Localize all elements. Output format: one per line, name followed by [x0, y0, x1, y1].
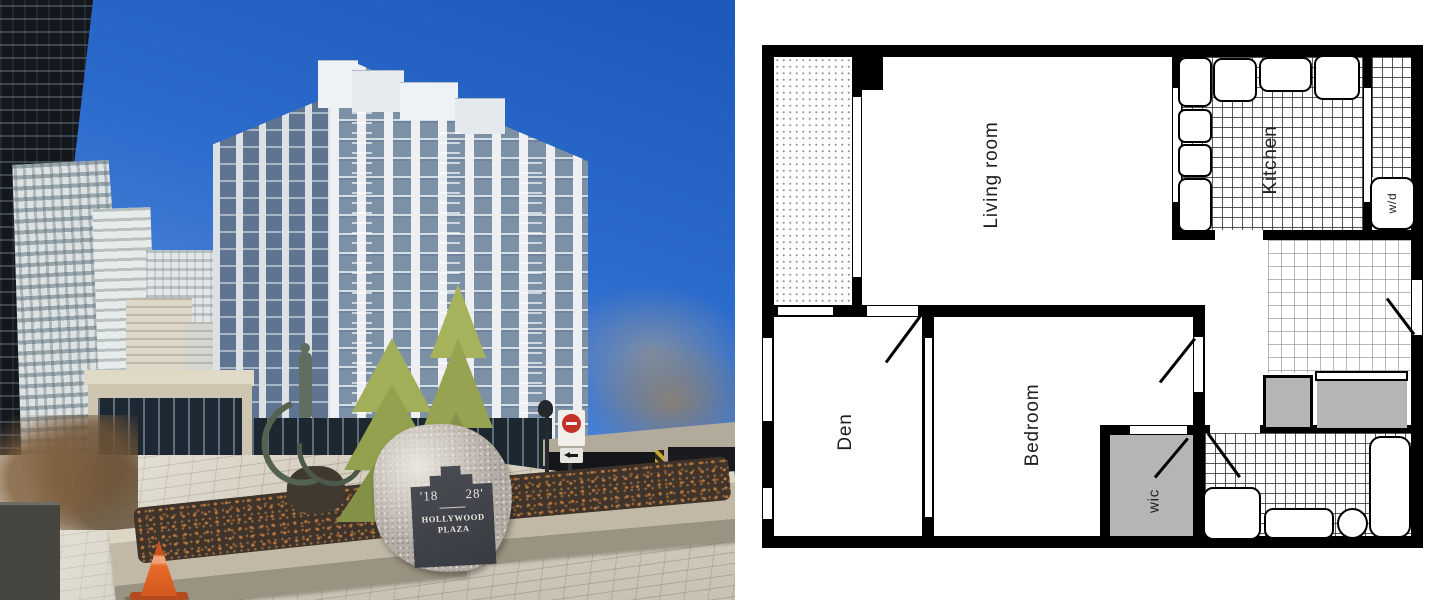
- bath-door-opening: [1210, 425, 1260, 433]
- wall-left: [762, 45, 774, 548]
- closet-slider: [1315, 371, 1408, 381]
- tower-crown: [352, 70, 404, 112]
- den-divider-glass: [925, 338, 932, 517]
- sculpture-figure-head-icon: [300, 343, 310, 353]
- den-window-top: [778, 307, 833, 315]
- wic-door-opening: [1130, 426, 1187, 434]
- listing-image: '18 28' HOLLYWOOD PLAZA: [0, 0, 1440, 600]
- no-entry-sign-icon: [558, 410, 585, 446]
- tower-crown: [400, 82, 458, 120]
- living-room-label: Living room: [981, 121, 1003, 228]
- sculpture-figure-icon: [299, 352, 312, 418]
- den-window-left: [763, 338, 772, 421]
- washer-dryer-label: w/d: [1385, 192, 1399, 213]
- pantry-floor: [1372, 57, 1411, 177]
- foyer-floor: [1268, 240, 1411, 373]
- bedroom-door-leaf: [1159, 338, 1196, 384]
- wall-kitchen-bottom: [1172, 230, 1415, 240]
- sign-divider: [440, 506, 466, 508]
- counter-icon: [1213, 58, 1257, 102]
- bedroom-label: Bedroom: [1022, 384, 1044, 467]
- entry-door-opening: [1412, 280, 1422, 335]
- vanity-icon: [1264, 508, 1334, 539]
- balcony-column: [352, 112, 372, 468]
- counter-icon: [1178, 144, 1212, 177]
- living-window: [853, 97, 861, 277]
- counter-icon: [1314, 55, 1360, 100]
- toilet-icon: [1337, 508, 1368, 539]
- floor-plan: Living room Kitchen Den Bedroom wic w/d: [735, 0, 1440, 600]
- wall-notch: [852, 57, 883, 90]
- balcony-floor: [774, 57, 852, 305]
- stove-icon: [1259, 57, 1312, 92]
- wall-wic-left: [1100, 425, 1110, 548]
- counter-icon: [1178, 178, 1212, 232]
- den-window-left: [763, 488, 772, 519]
- sign-number-right: 28': [465, 485, 484, 502]
- building-photo: '18 28' HOLLYWOOD PLAZA: [0, 0, 735, 600]
- den-door-opening: [867, 306, 918, 316]
- sign-number-left: '18: [420, 488, 439, 505]
- lamp-head-icon: [538, 400, 553, 417]
- dark-planter-box: [0, 502, 60, 600]
- wic-floor: [1110, 435, 1197, 538]
- closet-small: [1263, 375, 1313, 430]
- arrow-sign-icon: [560, 448, 583, 463]
- den-label: Den: [835, 413, 857, 450]
- no-entry-circle-icon: [562, 414, 581, 433]
- bathtub-icon: [1369, 436, 1411, 538]
- wic-label: wic: [1146, 489, 1163, 513]
- shower-icon: [1203, 487, 1261, 540]
- den-door-leaf: [885, 316, 921, 364]
- kitchen-door-opening: [1215, 230, 1263, 240]
- fridge-icon: [1178, 57, 1212, 107]
- tower-crown: [455, 98, 505, 134]
- kitchen-label: Kitchen: [1260, 126, 1282, 195]
- counter-icon: [1178, 109, 1212, 143]
- closet-large: [1317, 381, 1407, 428]
- bedroom-door-opening: [1194, 337, 1203, 392]
